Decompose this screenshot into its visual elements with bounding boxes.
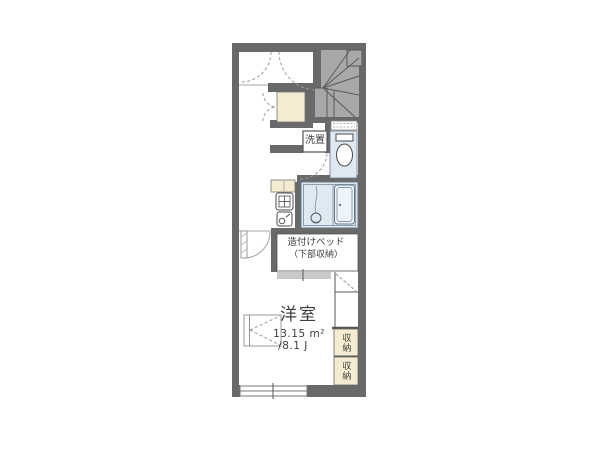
- closet-door-arc-bottom: [263, 107, 277, 121]
- kitchen-counter: [271, 180, 295, 192]
- wall-bottom: [307, 385, 366, 397]
- stair-entry: [315, 88, 321, 117]
- main-room-area-sqm: 13.15 m²: [249, 328, 349, 340]
- bed-label-line1: 造付けベッド: [266, 238, 366, 249]
- bathtub-handle: [339, 204, 341, 206]
- shower-drain-icon: [311, 213, 321, 223]
- wall-bed-top: [271, 228, 366, 234]
- wall-left: [232, 43, 239, 397]
- kitchen: [271, 180, 295, 226]
- wall-closet-right: [305, 92, 313, 128]
- storage-top-label: 収納: [340, 332, 350, 354]
- washroom-door-arc: [300, 152, 327, 179]
- stair-landing: [347, 50, 362, 66]
- main-room-area-tatami: /8.1 J: [243, 340, 343, 352]
- wall-top: [232, 43, 318, 52]
- storage-bottom-label: 収納: [340, 360, 350, 382]
- wall-entrance: [268, 83, 317, 92]
- floorplan-drawing: [0, 0, 600, 450]
- toilet-icon: [337, 144, 353, 166]
- laundry-label: 洗置: [301, 135, 329, 147]
- appliance-door-diagonal: [336, 274, 356, 291]
- toilet-room: [330, 121, 357, 178]
- wall-laundry-stub: [270, 145, 303, 153]
- bed-label-line2: （下部収納）: [266, 250, 366, 260]
- closet-door-arc-top: [263, 93, 277, 107]
- bathtub-icon: [335, 185, 355, 224]
- bathroom: [301, 182, 358, 228]
- entrance-closet: [277, 92, 305, 122]
- main-room-name: 洋室: [249, 306, 349, 326]
- floorplan-page: 洗置 造付けベッド （下部収納） 洋室 13.15 m² /8.1 J 収納 収…: [0, 0, 600, 450]
- toilet-tank-icon: [336, 134, 353, 141]
- entrance-door-arc-left: [241, 52, 271, 82]
- staircase: [313, 43, 366, 123]
- wall-bottom-left: [232, 385, 240, 397]
- wall-bath-left: [295, 182, 301, 228]
- small-window-above-toilet: [331, 121, 357, 130]
- bed-edge-strip: [277, 272, 331, 279]
